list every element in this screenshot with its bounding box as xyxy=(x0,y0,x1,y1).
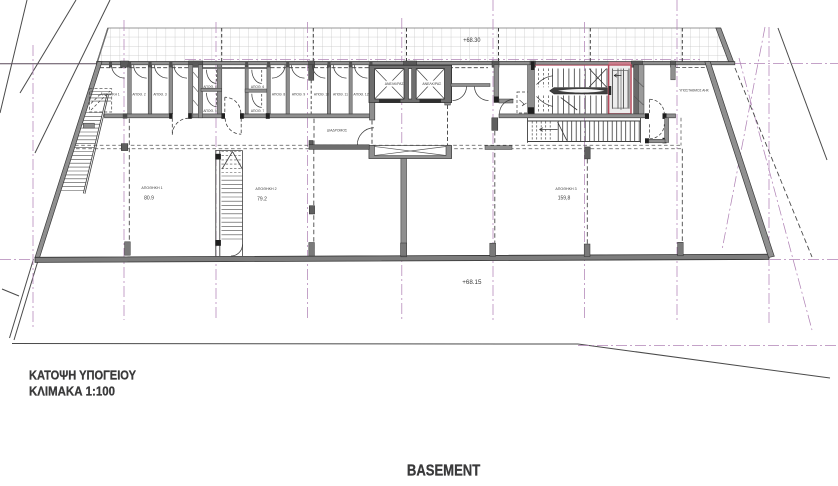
svg-text:ΑΠΟΘΗΚΗ 3: ΑΠΟΘΗΚΗ 3 xyxy=(555,187,576,191)
svg-text:159,8: 159,8 xyxy=(558,196,571,202)
svg-text:ΑΠΟΘ. 12: ΑΠΟΘ. 12 xyxy=(353,93,368,97)
svg-text:ΑΠΟΘ. 5: ΑΠΟΘ. 5 xyxy=(203,109,217,113)
svg-text:ΑΠΟΘ. 4: ΑΠΟΘ. 4 xyxy=(203,85,217,89)
svg-text:+68.30: +68.30 xyxy=(463,37,480,44)
svg-text:ΔΙΑΔΡΟΜΟΣ: ΔΙΑΔΡΟΜΟΣ xyxy=(327,129,347,133)
svg-text:ΑΠΟΘΗΚΗ 1: ΑΠΟΘΗΚΗ 1 xyxy=(100,93,120,97)
svg-text:ΑΠΟΘΗΚΗ 2: ΑΠΟΘΗΚΗ 2 xyxy=(255,187,276,191)
svg-text:ΑΠΟΘΗΚΗ 1: ΑΠΟΘΗΚΗ 1 xyxy=(141,186,162,190)
svg-text:79.2: 79.2 xyxy=(257,197,267,203)
svg-text:ΑΝΕΛΚ/ΡΑΣ: ΑΝΕΛΚ/ΡΑΣ xyxy=(422,82,441,86)
svg-text:+68.15: +68.15 xyxy=(462,279,482,286)
svg-text:ΥΠΟΣΤΑΘΜΟΣ ΑΗΚ: ΥΠΟΣΤΑΘΜΟΣ ΑΗΚ xyxy=(679,88,709,92)
svg-text:ΚΑΤΟΨΗ ΥΠΟΓΕΙΟΥ: ΚΑΤΟΨΗ ΥΠΟΓΕΙΟΥ xyxy=(29,368,136,383)
svg-text:ΑΠΟΘ. 11: ΑΠΟΘ. 11 xyxy=(333,93,348,97)
svg-text:ΑΠΟΘ. 8: ΑΠΟΘ. 8 xyxy=(272,93,286,97)
svg-text:80.9: 80.9 xyxy=(144,196,154,202)
svg-text:BASEMENT: BASEMENT xyxy=(407,463,481,480)
svg-text:ΑΝΕΛΚ/ΡΑΣ: ΑΝΕΛΚ/ΡΑΣ xyxy=(385,82,404,86)
svg-text:ΑΠΟΘ. 10: ΑΠΟΘ. 10 xyxy=(314,93,329,97)
svg-text:ΑΠΟΘ. 9: ΑΠΟΘ. 9 xyxy=(292,93,306,97)
svg-text:ΑΠΟΘ. 7: ΑΠΟΘ. 7 xyxy=(251,109,265,113)
svg-text:ΚΛΙΜΑΚΑ 1:100: ΚΛΙΜΑΚΑ 1:100 xyxy=(29,383,115,398)
svg-text:ΑΠΟΘ. 3: ΑΠΟΘ. 3 xyxy=(153,93,167,97)
svg-text:ΑΠΟΘ. 2: ΑΠΟΘ. 2 xyxy=(132,93,146,97)
svg-text:ΑΠΟΘ. 6: ΑΠΟΘ. 6 xyxy=(251,85,265,89)
